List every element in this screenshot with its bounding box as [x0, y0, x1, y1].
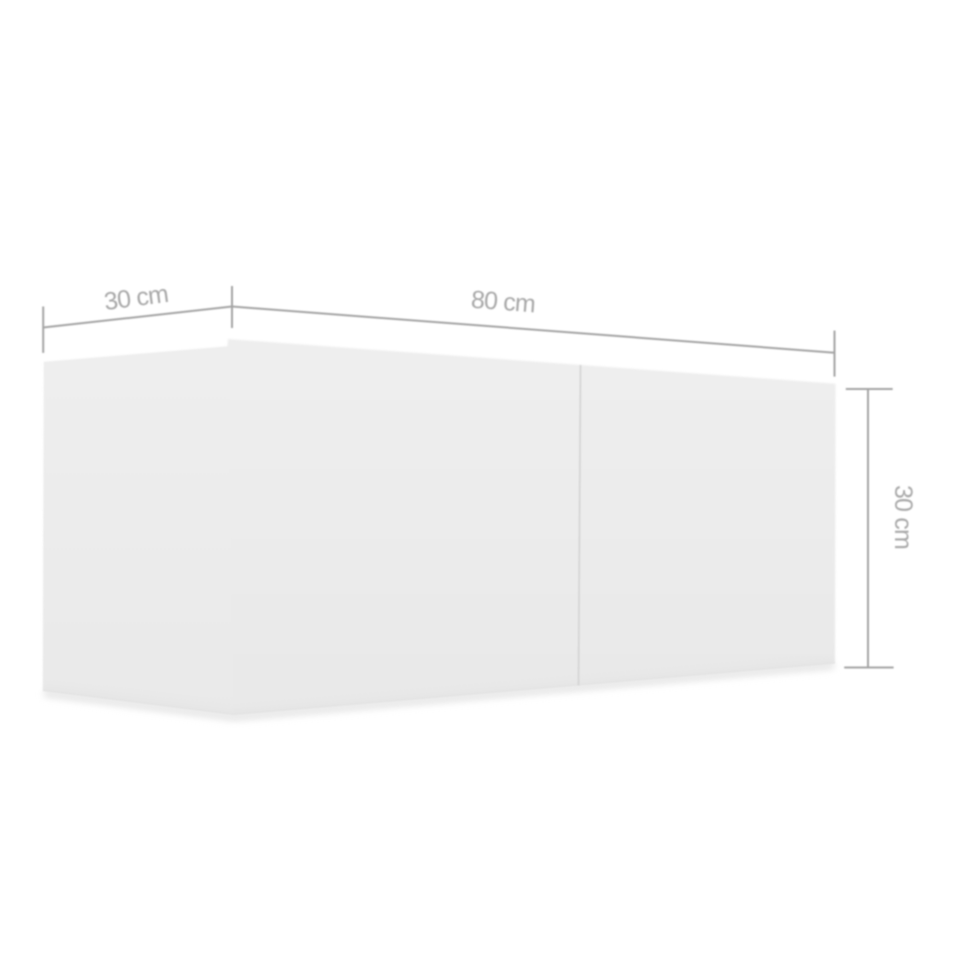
svg-text:80 cm: 80 cm	[470, 286, 536, 319]
svg-text:30 cm: 30 cm	[889, 485, 917, 549]
svg-text:30 cm: 30 cm	[102, 280, 169, 316]
